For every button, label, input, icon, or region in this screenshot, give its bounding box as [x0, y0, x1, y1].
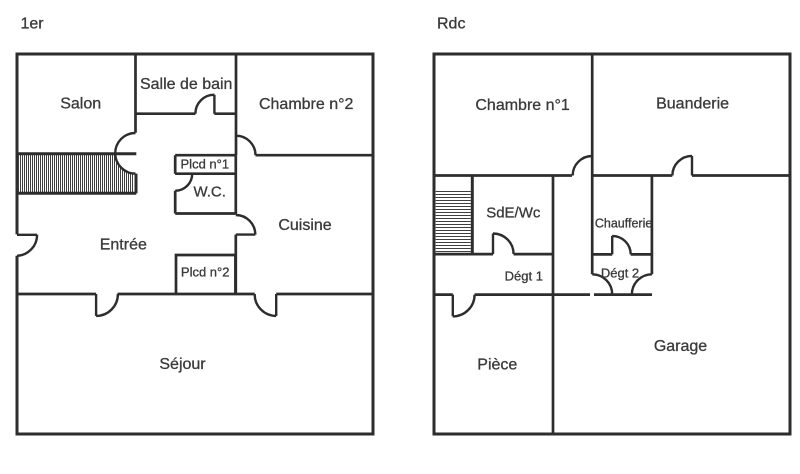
svg-text:Salon: Salon [60, 95, 101, 112]
svg-text:1er: 1er [21, 15, 45, 32]
svg-text:Salle de bain: Salle de bain [140, 76, 233, 93]
svg-text:Chambre n°2: Chambre n°2 [259, 96, 354, 113]
svg-text:Rdc: Rdc [437, 15, 465, 32]
svg-text:Cuisine: Cuisine [278, 217, 331, 234]
svg-text:Séjour: Séjour [159, 356, 206, 373]
svg-text:Chaufferie: Chaufferie [595, 217, 652, 231]
svg-text:Dégt 2: Dégt 2 [601, 266, 639, 281]
svg-text:Garage: Garage [654, 338, 707, 355]
svg-text:Entrée: Entrée [100, 236, 147, 253]
svg-text:Dégt 1: Dégt 1 [505, 269, 543, 284]
svg-text:SdE/Wc: SdE/Wc [486, 204, 541, 221]
svg-text:Plcd n°1: Plcd n°1 [181, 157, 230, 172]
svg-text:Buanderie: Buanderie [656, 95, 729, 112]
svg-text:Chambre n°1: Chambre n°1 [475, 97, 570, 114]
svg-text:W.C.: W.C. [193, 183, 226, 200]
svg-text:Plcd n°2: Plcd n°2 [181, 265, 230, 280]
svg-text:Pièce: Pièce [477, 356, 517, 373]
